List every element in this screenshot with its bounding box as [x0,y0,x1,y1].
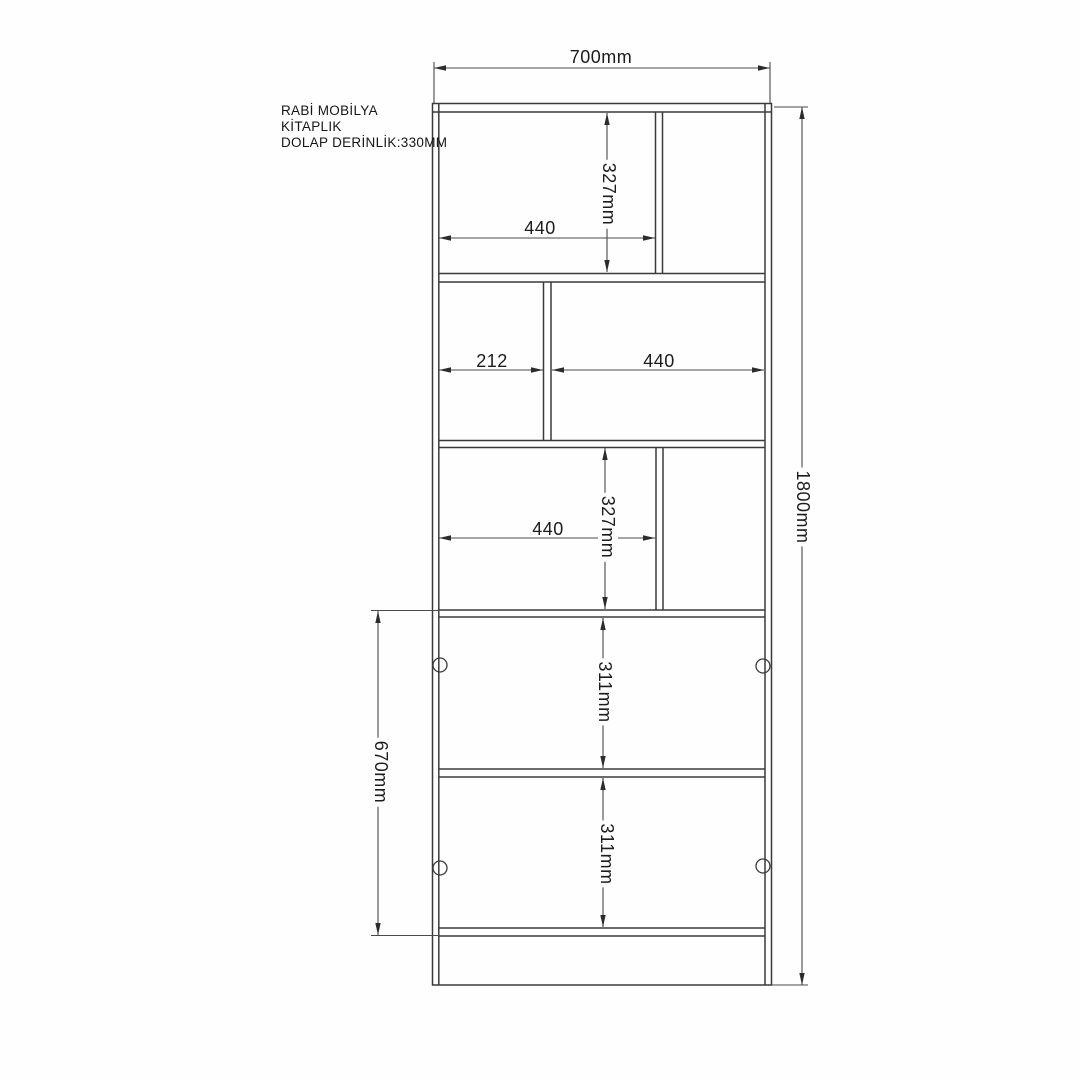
dimension-lines [371,62,808,985]
arrow-311s5-top [600,778,605,790]
arrow-327s1-bottom [604,260,609,272]
arrow-212-left [439,367,451,372]
dim-label-total-height: 1800mm [793,467,813,546]
arrow-327s3-bottom [602,597,607,609]
dim-label-section1-width: 440 [524,219,556,237]
arrow-700-right [758,65,770,70]
arrow-440s2-left [552,367,564,372]
title-line-depth: DOLAP DERİNLİK:330MM [281,135,447,151]
pin-hole-left-upper [433,658,447,672]
arrow-327s1-top [604,113,609,125]
arrow-311s4-bottom [600,756,605,768]
arrow-700-left [434,65,446,70]
title-block: RABİ MOBİLYA KİTAPLIK DOLAP DERİNLİK:330… [281,103,447,151]
arrow-670-bottom [375,923,380,935]
arrow-670-top [375,611,380,623]
dim-label-section2-width-right: 440 [643,352,675,370]
arrow-440s1-left [439,235,451,240]
dim-label-section1-height: 327mm [599,160,619,229]
dim-label-top-width: 700mm [570,48,633,66]
title-line-product: KİTAPLIK [281,119,447,135]
arrow-440s2-right [752,367,764,372]
arrow-212-right [531,367,543,372]
dim-label-lower-left-span: 670mm [371,738,391,807]
dim-label-section5-height: 311mm [597,820,617,887]
title-line-brand: RABİ MOBİLYA [281,103,447,119]
drawing-canvas [0,0,1080,1080]
dim-label-section3-height: 327mm [598,493,618,562]
dim-label-section4-height: 311mm [595,658,615,725]
arrow-440s1-right [643,235,655,240]
pin-hole-right-lower [756,859,770,873]
pin-hole-left-lower [433,861,447,875]
arrow-311s5-bottom [600,915,605,927]
arrow-327s3-top [602,448,607,460]
arrow-1800-bottom [799,973,804,985]
arrow-1800-top [799,107,804,119]
arrow-311s4-top [600,618,605,630]
dim-label-section2-width-left: 212 [476,352,508,370]
bookcase-technical-drawing: RABİ MOBİLYA KİTAPLIK DOLAP DERİNLİK:330… [0,0,1080,1080]
arrowheads [375,65,804,985]
arrow-440s3-right [643,535,655,540]
arrow-440s3-left [439,535,451,540]
pin-hole-right-upper [756,659,770,673]
dim-label-section3-width: 440 [532,520,564,538]
